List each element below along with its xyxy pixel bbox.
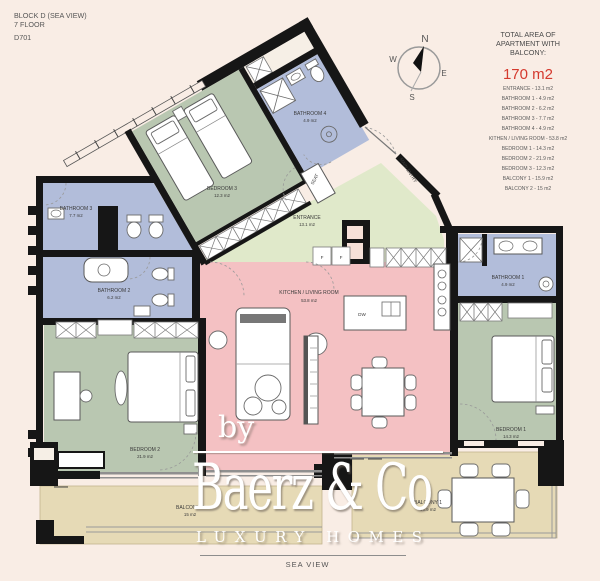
legend-item: BEDROOM 2 - 21.9 m2 (502, 156, 555, 162)
entry-door (365, 127, 396, 154)
shower-icon (460, 238, 482, 262)
legend-title-line: TOTAL AREA OF (501, 30, 557, 39)
label-entrance: ENTRANCE (293, 215, 321, 221)
watermark-rule-top (193, 451, 443, 453)
tv-unit-icon (304, 336, 318, 424)
legend-item: KITHEN / LIVING ROOM - 53.8 m2 (489, 136, 568, 142)
legend-item: BEDROOM 1 - 14.3 m2 (502, 146, 555, 152)
legend-title-line: BALCONY: (510, 48, 546, 57)
legend: TOTAL AREA OF APARTMENT WITH BALCONY: 17… (489, 30, 568, 192)
floor-plan-drawing: BATHROOM 3 7.7 m2 BATHROOM 2 6.2 m2 BEDR… (0, 0, 600, 581)
bed-icon (492, 336, 554, 402)
label-bedroom1: BEDROOM 1 (496, 427, 526, 433)
legend-item: ENTRANCE - 13.1 m2 (503, 86, 553, 92)
area-kitchen-living: 53.8 m2 (301, 298, 317, 303)
bench-icon (536, 406, 554, 414)
area-bedroom2: 21.9 m2 (137, 454, 153, 459)
legend-item: BATHROOM 1 - 4.9 m2 (502, 96, 555, 102)
title-block: BLOCK D (SEA VIEW) 7 FLOOR D701 (14, 11, 87, 42)
area-bathroom1: 4.9 m2 (501, 282, 515, 287)
area-bathroom4: 4.9 m2 (303, 118, 317, 123)
legend-item: BATHROOM 2 - 6.2 m2 (502, 106, 555, 112)
label-bathroom4: BATHROOM 4 (294, 111, 327, 117)
unit-number: D701 (14, 33, 31, 42)
label-bathroom3: BATHROOM 3 (60, 206, 93, 212)
compass-needle-icon (413, 46, 424, 72)
cooktop-icon (434, 264, 450, 330)
dresser-icon (98, 320, 132, 335)
label-freezer: F (340, 255, 343, 260)
compass: N W E S (389, 34, 446, 102)
room-fill-balcony2 (40, 486, 322, 544)
legend-title-line: APARTMENT WITH (496, 39, 560, 48)
legend-item: BALCONY 2 - 15 m2 (505, 186, 552, 192)
side-table-icon (209, 331, 227, 349)
sea-view-label: SEA VIEW (250, 560, 365, 569)
area-bathroom2: 6.2 m2 (107, 295, 121, 300)
legend-item: BALCONY 1 - 15.9 m2 (503, 176, 554, 182)
label-fridge: F (321, 255, 324, 260)
nightstand-icon (184, 424, 197, 434)
bench-icon (115, 371, 127, 405)
compass-s: S (409, 93, 414, 102)
washer-icon (539, 277, 553, 291)
floor-title: 7 FLOOR (14, 20, 45, 29)
label-bedroom2: BEDROOM 2 (130, 447, 160, 453)
area-entrance: 13.1 m2 (299, 222, 315, 227)
label-kitchen-living: KITCHEN / LIVING ROOM (279, 290, 338, 296)
double-sink-icon (494, 238, 542, 254)
bed-icon (128, 352, 198, 422)
area-bedroom3: 12.3 m2 (214, 193, 230, 198)
area-bedroom1: 14.3 m2 (503, 434, 519, 439)
label-bedroom3: BEDROOM 3 (207, 186, 237, 192)
legend-item: BATHROOM 3 - 7.7 m2 (502, 116, 555, 122)
label-bathroom2: BATHROOM 2 (98, 288, 131, 294)
compass-w: W (389, 55, 397, 64)
sink-icon (134, 306, 150, 316)
label-balcony2: BALCONY 2 (176, 505, 204, 511)
block-title: BLOCK D (SEA VIEW) (14, 11, 87, 20)
watermark-rule-bottom (200, 555, 406, 556)
kitchen-island-icon (344, 296, 406, 330)
compass-n: N (421, 34, 428, 45)
area-balcony1: 15.9 m2 (420, 507, 436, 512)
compass-e: E (441, 69, 446, 78)
area-bathroom3: 7.7 m2 (69, 213, 83, 218)
counter-icon (370, 248, 384, 267)
floor-plan-page: BATHROOM 3 7.7 m2 BATHROOM 2 6.2 m2 BEDR… (0, 0, 600, 581)
label-bathroom1: BATHROOM 1 (492, 275, 525, 281)
area-balcony2: 15 m2 (184, 512, 197, 517)
total-area-value: 170 m2 (503, 66, 553, 83)
legend-item: BEDROOM 3 - 12.3 m2 (502, 166, 555, 172)
label-dishwasher: DW (358, 312, 366, 317)
label-balcony1: BALCONY 1 (414, 500, 442, 506)
legend-item: BATHROOM 4 - 4.9 m2 (502, 126, 555, 132)
wardrobe-icon (56, 322, 96, 338)
dresser-icon (508, 303, 552, 318)
bathtub-icon (84, 258, 128, 282)
